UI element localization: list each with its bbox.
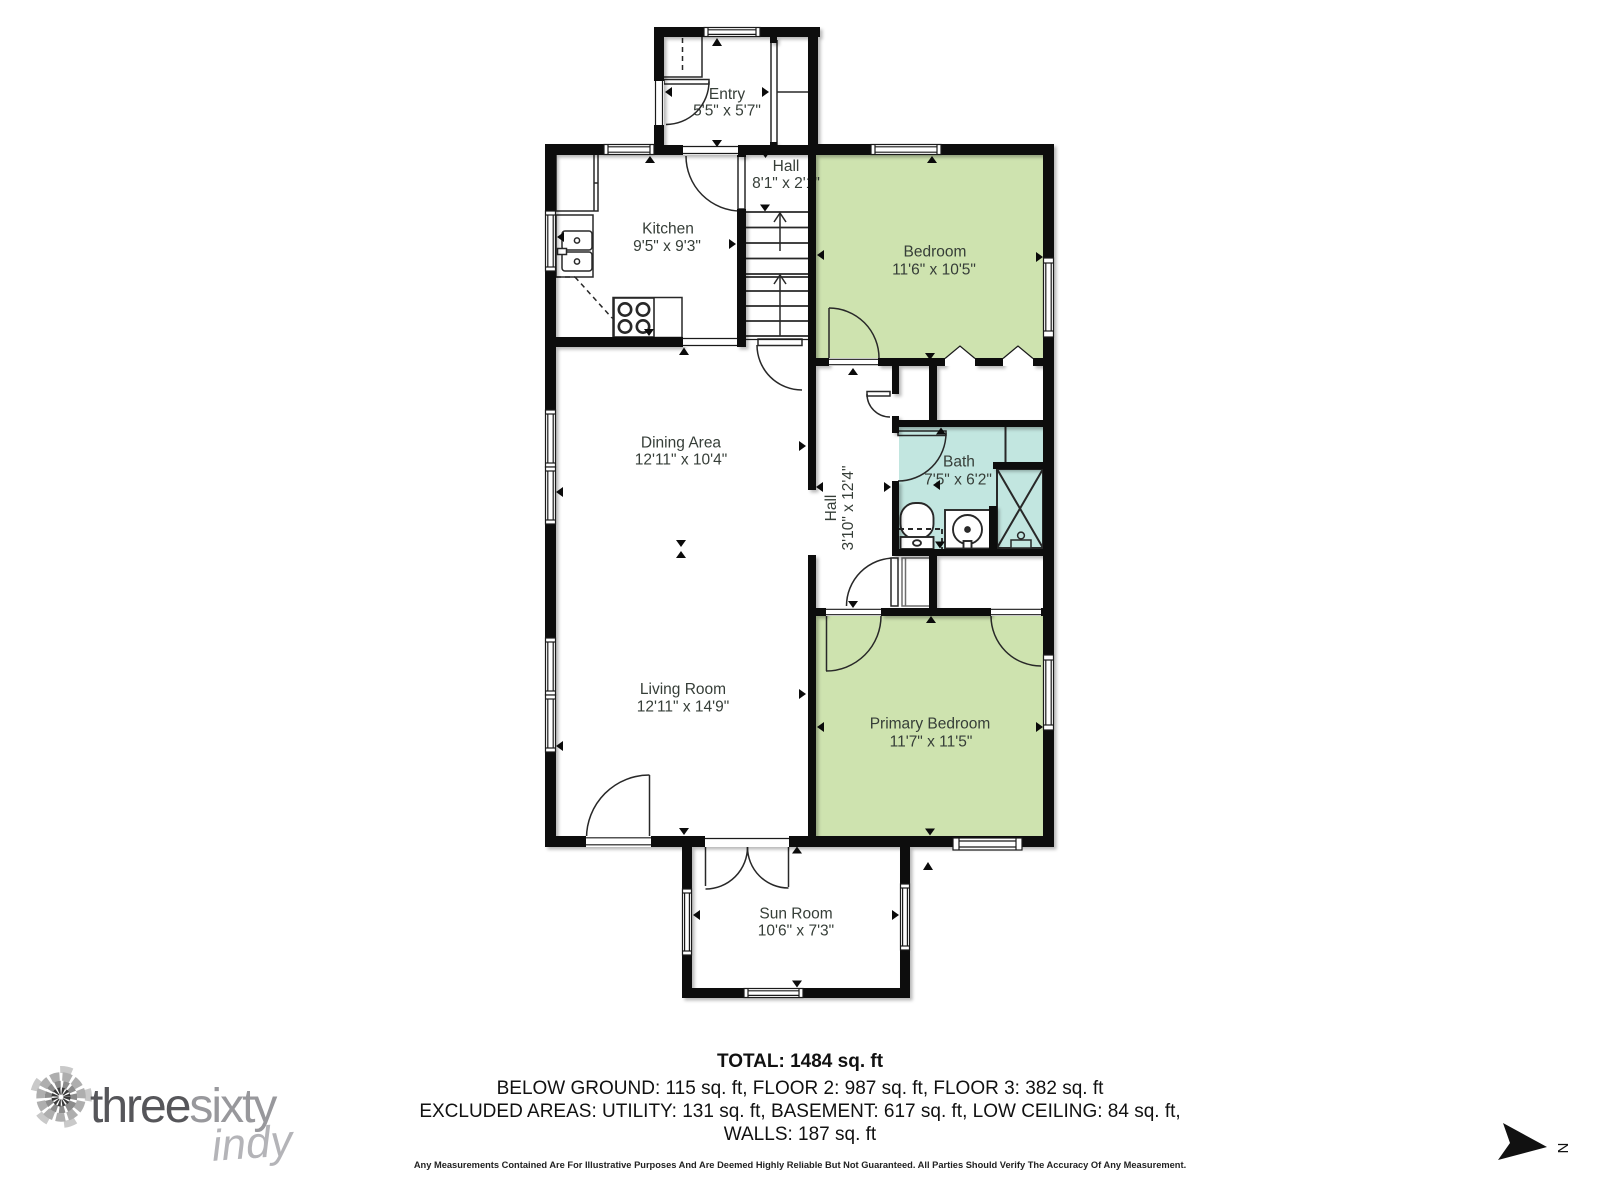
svg-text:BELOW GROUND: 115 sq. ft, FLOO: BELOW GROUND: 115 sq. ft, FLOOR 2: 987 s…: [497, 1078, 1105, 1099]
svg-text:11'6" x 10'5": 11'6" x 10'5": [892, 262, 976, 279]
svg-text:Primary Bedroom: Primary Bedroom: [870, 716, 991, 733]
svg-text:Dining Area: Dining Area: [641, 435, 722, 452]
svg-text:Hall: Hall: [823, 495, 840, 522]
svg-text:Sun Room: Sun Room: [759, 906, 832, 923]
svg-text:10'6" x 7'3": 10'6" x 7'3": [758, 923, 834, 940]
svg-text:WALLS: 187 sq. ft: WALLS: 187 sq. ft: [724, 1124, 877, 1145]
svg-text:N: N: [1554, 1143, 1571, 1154]
svg-text:9'5" x 9'3": 9'5" x 9'3": [633, 238, 701, 255]
svg-text:TOTAL: 1484 sq. ft: TOTAL: 1484 sq. ft: [717, 1051, 884, 1072]
svg-text:5'5" x 5'7": 5'5" x 5'7": [693, 103, 761, 120]
svg-text:12'11" x 10'4": 12'11" x 10'4": [635, 452, 727, 469]
svg-text:Bedroom: Bedroom: [904, 244, 967, 261]
svg-text:Kitchen: Kitchen: [642, 221, 694, 238]
svg-text:Bath: Bath: [943, 454, 975, 471]
svg-text:Any Measurements Contained Are: Any Measurements Contained Are For Illus…: [414, 1160, 1186, 1170]
svg-text:Living Room: Living Room: [640, 681, 726, 698]
svg-text:EXCLUDED AREAS: UTILITY: 131 s: EXCLUDED AREAS: UTILITY: 131 sq. ft, BAS…: [419, 1101, 1180, 1122]
svg-text:Entry: Entry: [709, 86, 745, 103]
svg-text:12'11" x 14'9": 12'11" x 14'9": [637, 699, 729, 716]
svg-text:7'5" x 6'2": 7'5" x 6'2": [924, 472, 992, 489]
svg-text:Hall: Hall: [773, 158, 800, 175]
svg-text:3'10" x 12'4": 3'10" x 12'4": [840, 465, 857, 550]
svg-text:indy: indy: [210, 1116, 297, 1171]
svg-text:11'7" x 11'5": 11'7" x 11'5": [890, 734, 973, 751]
